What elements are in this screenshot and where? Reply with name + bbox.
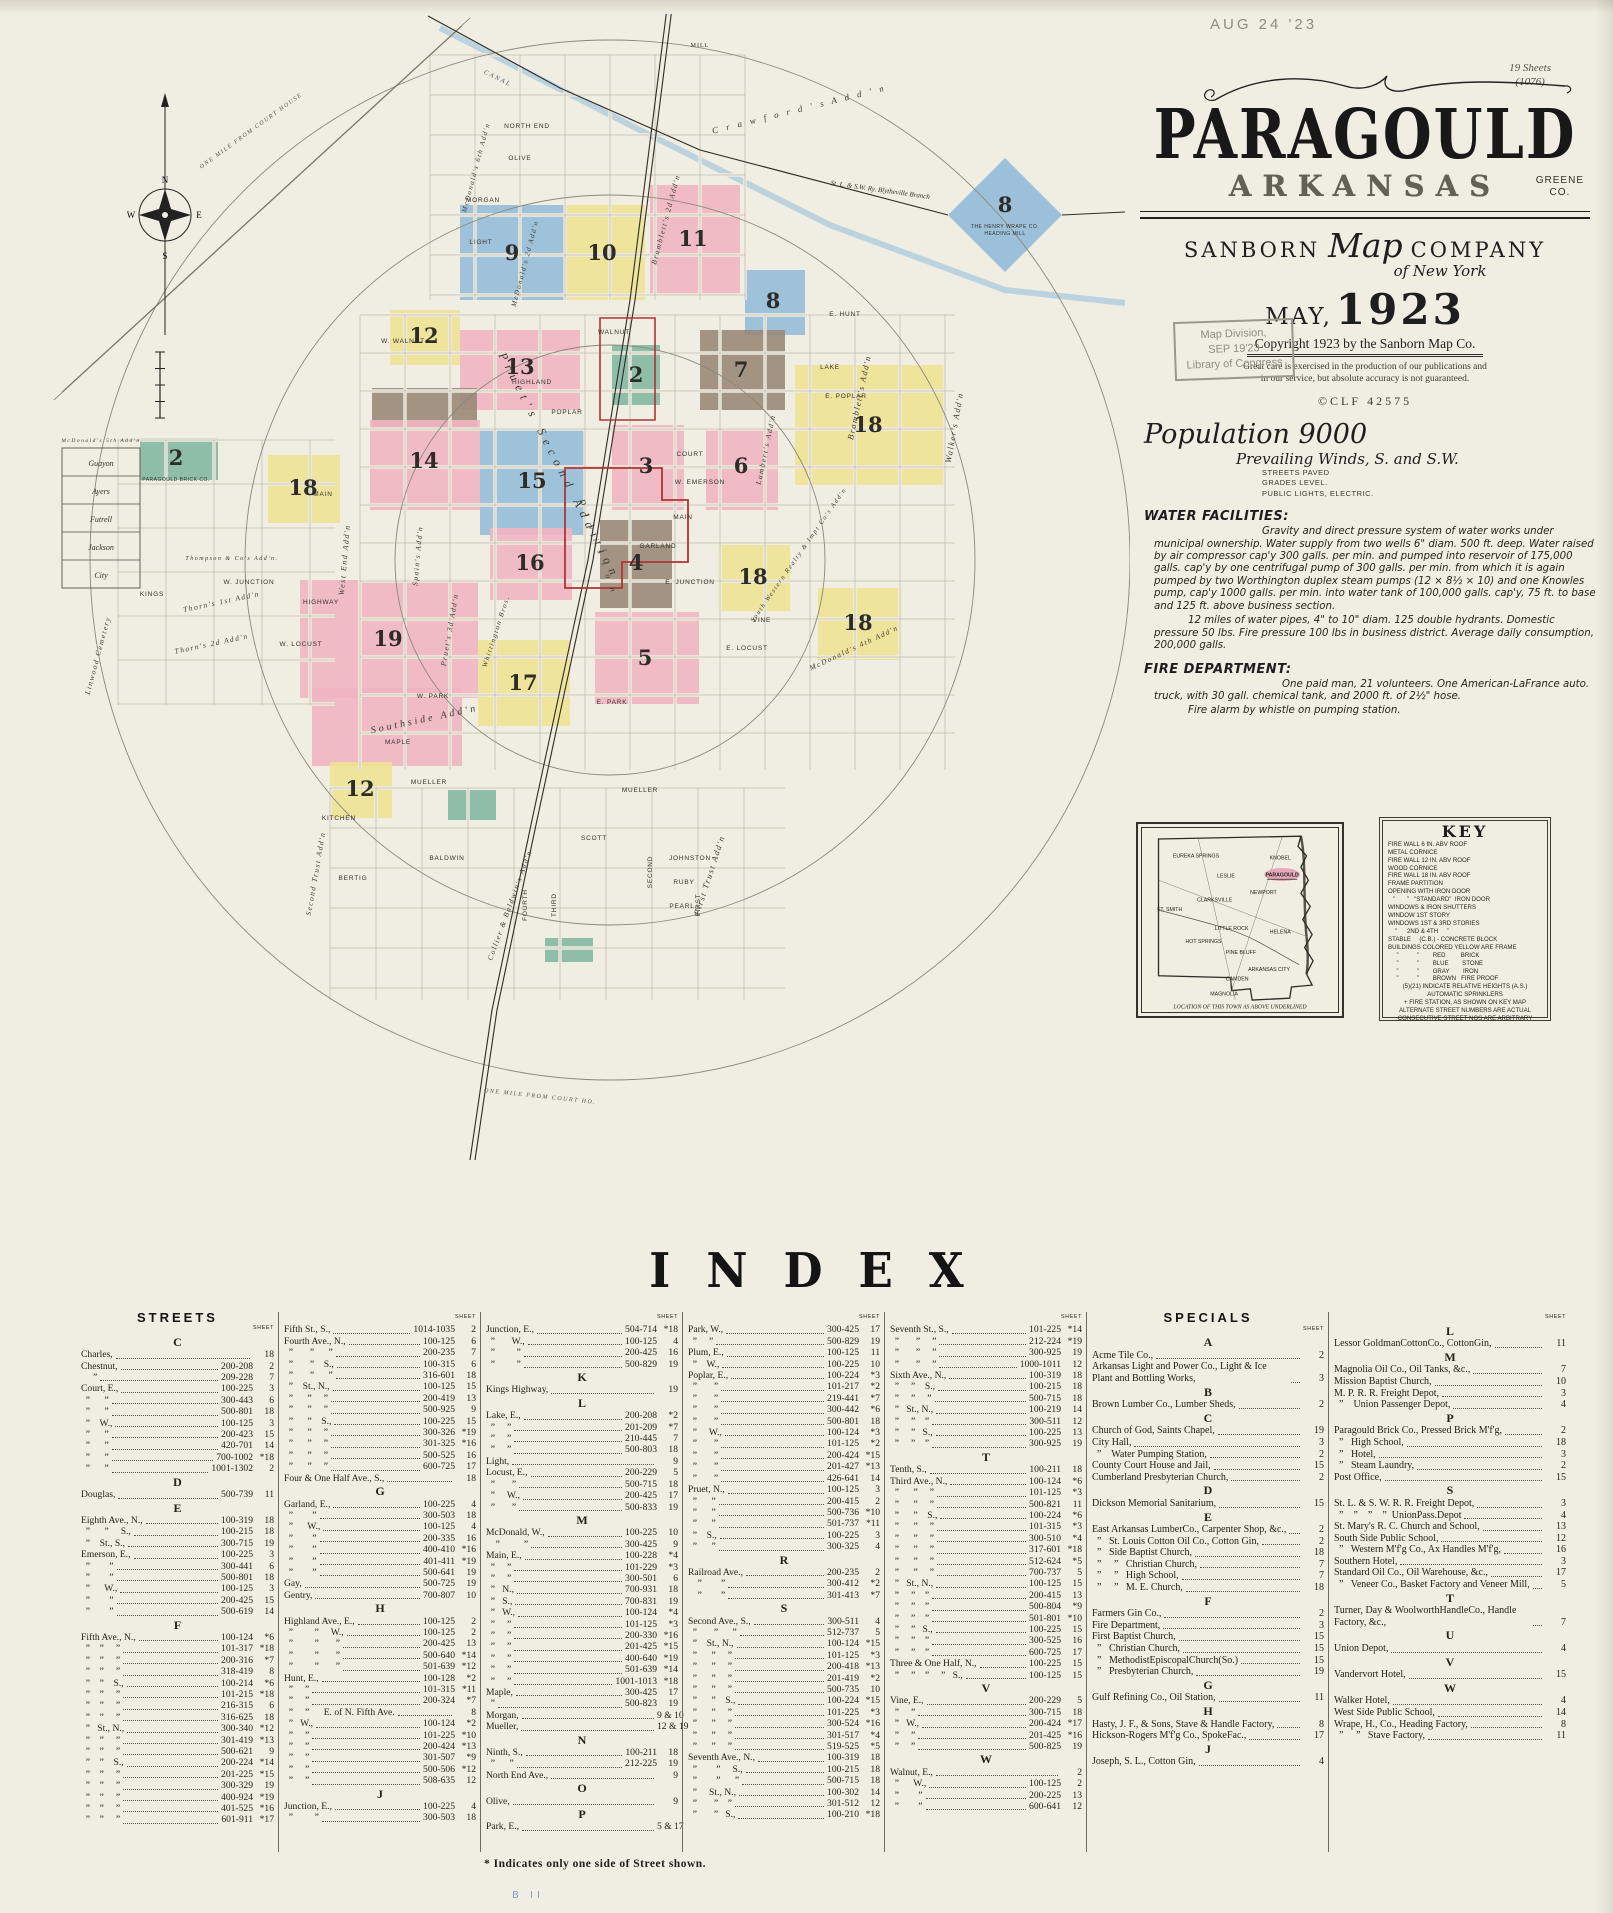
street-label: NORTH END — [504, 123, 550, 130]
sheet-number: 3 — [1545, 1556, 1566, 1568]
street-name: Emerson, E., — [81, 1549, 131, 1560]
dot-leader — [525, 1559, 622, 1560]
sheet-number: 6 — [455, 1336, 476, 1347]
index-letter-heading: L — [1334, 1326, 1566, 1338]
sheet-number: *3 — [1061, 1521, 1082, 1532]
house-number-range: 700-807 — [423, 1590, 455, 1601]
sheet-number: 14 — [253, 1440, 274, 1451]
street-label: PEARL — [669, 903, 694, 910]
house-number-range: 200-425 — [625, 1490, 657, 1501]
street-name: ” St., N., — [688, 1638, 734, 1649]
street-name: ” ” ” — [890, 1438, 929, 1449]
index-row: ” ” ”200-41513 — [890, 1590, 1082, 1601]
house-number-range: 100-125 — [1029, 1778, 1061, 1789]
sheet-number: 18 — [1303, 1547, 1324, 1559]
sheet-number: 6 — [455, 1359, 476, 1370]
index-row: ” ”101-125*2 — [688, 1438, 880, 1449]
street-label: WALNUT — [598, 329, 630, 336]
sheet-number: 19 — [657, 1359, 678, 1370]
house-number-range: 100-125 — [423, 1381, 455, 1392]
dot-leader — [134, 1535, 218, 1536]
street-name: ” ” — [81, 1406, 109, 1417]
street-name: ” ” — [284, 1695, 309, 1706]
sheet-number: *2 — [455, 1718, 476, 1729]
house-number-range: 500-735 — [827, 1684, 859, 1695]
street-name: ” ” ” — [81, 1689, 120, 1700]
sheet-number: 19 — [657, 1758, 678, 1769]
sheet-number: *10 — [1061, 1613, 1082, 1624]
street-name: ” W., — [890, 1718, 919, 1729]
sheet-number: *13 — [253, 1735, 274, 1746]
house-number-range: 200-424 — [827, 1450, 859, 1461]
library-of-congress-stamp: Map Division, SEP 19'23 Library of Congr… — [1173, 318, 1295, 381]
house-number-range: 300-443 — [221, 1395, 253, 1406]
dot-leader — [719, 1504, 824, 1505]
index-row: ” Steam Laundry,2 — [1334, 1460, 1566, 1472]
sheet-number: 15 — [455, 1416, 476, 1427]
index-row: Hasty, J. F., & Sons, Stave & Handle Fac… — [1092, 1719, 1324, 1731]
index-row: ” ” ” ” S.,100-12515 — [890, 1670, 1082, 1681]
dot-leader — [937, 1541, 1026, 1542]
index-row: ” ” S.,100-224*6 — [890, 1510, 1082, 1521]
sheet-number: 18 — [455, 1370, 476, 1381]
dot-leader — [926, 1809, 1027, 1810]
sheet-number: *14 — [1061, 1324, 1082, 1335]
sheet-number: 18 — [1061, 1370, 1082, 1381]
house-number-range: 100-215 — [1029, 1381, 1061, 1392]
dot-leader — [722, 1367, 824, 1368]
district-number: 18 — [738, 564, 767, 589]
index-row: ” ”500-83319 — [486, 1502, 678, 1513]
dot-leader — [1442, 1396, 1542, 1397]
street-name: ” ” ” — [284, 1650, 340, 1661]
street-name: ” — [486, 1698, 495, 1709]
street-name: ” ” S., — [688, 1764, 743, 1775]
house-number-range: 200-324 — [423, 1695, 455, 1706]
street-name: ” ” S., — [81, 1678, 124, 1689]
index-row: McDonald, W.,100-22510 — [486, 1527, 678, 1538]
sheet-number: 18 — [859, 1416, 880, 1427]
dot-leader — [918, 1738, 1026, 1739]
index-row: ” St., N.,100-124*15 — [688, 1638, 880, 1649]
street-name: ” ” ” — [890, 1499, 934, 1510]
dot-leader — [740, 1635, 824, 1636]
compass-north: N — [162, 175, 169, 185]
sheet-number: *7 — [253, 1655, 274, 1666]
index-row: ” ” ”500-71518 — [688, 1775, 880, 1786]
street-name: Walker Hotel, — [1334, 1695, 1390, 1707]
street-label: HIGHLAND — [512, 379, 552, 386]
dot-leader — [337, 1367, 420, 1368]
street-name: Light, — [486, 1456, 509, 1467]
house-number-range: 100-125 — [423, 1616, 455, 1627]
sheet-number: 3 — [253, 1383, 274, 1394]
dot-leader — [721, 1481, 824, 1482]
dot-leader — [134, 1558, 218, 1559]
dot-leader — [1195, 1556, 1300, 1557]
sheet-number: 7 — [657, 1433, 678, 1444]
dot-leader — [334, 1424, 420, 1425]
index-row: North End Ave.,9 — [486, 1770, 678, 1781]
dot-leader — [727, 1356, 824, 1357]
sheet-number: 6 — [253, 1700, 274, 1711]
dot-leader — [927, 1704, 1026, 1705]
index-row: Dickson Memorial Sanitarium,15 — [1092, 1498, 1324, 1510]
key-line: WINDOW 1ST STORY — [1388, 912, 1542, 920]
dot-leader — [524, 1356, 622, 1357]
index-row: ” ” ”216-3156 — [81, 1700, 274, 1711]
dot-leader — [518, 1616, 622, 1617]
street-name: ” ” Stave Factory, — [1334, 1730, 1425, 1742]
dot-leader — [738, 1704, 824, 1705]
dot-leader — [312, 1761, 420, 1762]
key-title: KEY — [1388, 824, 1542, 841]
dot-leader — [1441, 1541, 1542, 1542]
street-name: ” W., — [81, 1418, 112, 1429]
dot-leader — [936, 1775, 1058, 1776]
street-label: BALDWIN — [429, 855, 464, 862]
sheet-number: *2 — [859, 1438, 880, 1449]
street-name: ” ” ” — [81, 1700, 120, 1711]
sheet-number: 19 — [1061, 1741, 1082, 1752]
district-number: 9 — [505, 240, 520, 265]
index-row: ” W.,100-1252 — [890, 1778, 1082, 1789]
dot-leader — [938, 1390, 1026, 1391]
dot-leader — [1277, 1727, 1300, 1728]
city-label: NEWPORT — [1250, 890, 1277, 896]
index-row: ” ”300-5016 — [486, 1573, 678, 1584]
street-name: Eighth Ave., N., — [81, 1515, 143, 1526]
key-line: ” ” RED BRICK — [1388, 952, 1542, 960]
house-number-range: 600-725 — [423, 1461, 455, 1472]
street-name: Junction, E., — [486, 1324, 534, 1335]
index-row: Farmers Gin Co.,2 — [1092, 1608, 1324, 1620]
dot-leader — [1495, 1347, 1543, 1348]
dot-leader — [343, 1647, 420, 1648]
sheet-number: 11 — [1545, 1730, 1566, 1742]
owner-name: Jackson — [88, 543, 114, 552]
index-row: ” W.,100-1254 — [284, 1521, 476, 1532]
sheet-number: 8 — [253, 1666, 274, 1677]
street-name: Southern Hotel, — [1334, 1556, 1397, 1568]
street-name: ” ” — [486, 1433, 511, 1444]
index-row: ” W.,200-42517 — [486, 1490, 678, 1501]
street-index: STREETSSHEETCCharles,18Chestnut,200-2082… — [76, 1312, 1572, 1852]
street-name: ” ” — [81, 1463, 109, 1474]
index-row: ” ” ”316-60118 — [284, 1370, 476, 1381]
street-name: ” ” — [284, 1684, 309, 1695]
dot-leader — [1438, 1716, 1542, 1717]
sheet-number: 3 — [859, 1484, 880, 1495]
sheet-number: 4 — [455, 1499, 476, 1510]
sheet-number: 15 — [1061, 1578, 1082, 1589]
index-row: ” ” ”317-601*18 — [890, 1544, 1082, 1555]
dot-leader — [939, 1344, 1026, 1345]
street-name: ” Veneer Co., Basket Factory and Veneer … — [1334, 1579, 1530, 1591]
street-name: ” ” High School, — [1092, 1570, 1179, 1582]
index-row: Sixth Ave., N.,100-31918 — [890, 1370, 1082, 1381]
dot-leader — [514, 1627, 622, 1628]
street-name: ” W., — [688, 1359, 719, 1370]
house-number-range: 100-228 — [625, 1550, 657, 1561]
index-row: ” ”301-413*7 — [688, 1590, 880, 1601]
dot-leader — [117, 1615, 219, 1616]
sheet-number: 15 — [1303, 1631, 1324, 1643]
dot-leader — [524, 1419, 622, 1420]
dot-leader — [123, 1720, 218, 1721]
street-name: ” ” — [890, 1741, 915, 1752]
street-name: East Arkansas LumberCo., Carpenter Shop,… — [1092, 1524, 1286, 1536]
city-label: HOT SPRINGS — [1185, 939, 1221, 945]
street-name: ” ” ” — [890, 1347, 936, 1358]
street-name: ” ” ” — [890, 1336, 936, 1347]
index-row: ” ” ”300-32919 — [81, 1780, 274, 1791]
street-name: ” ” S., — [890, 1427, 933, 1438]
dot-leader — [123, 1811, 218, 1812]
dot-leader — [758, 1761, 824, 1762]
index-row: ” ”219-441*7 — [688, 1393, 880, 1404]
street-name: Fifth Ave., N., — [81, 1632, 136, 1643]
sheet-number: 2 — [859, 1496, 880, 1507]
index-row: East Arkansas LumberCo., Carpenter Shop,… — [1092, 1524, 1324, 1536]
index-row: ” ”500-71518 — [486, 1479, 678, 1490]
dot-leader — [922, 1727, 1026, 1728]
street-label: COURT — [677, 451, 704, 458]
index-row: ” ” ”300-326*19 — [284, 1427, 476, 1438]
house-number-range: 501-639 — [423, 1661, 455, 1672]
index-row: ” ” ”101-317*18 — [81, 1643, 274, 1654]
dot-leader — [522, 1718, 654, 1719]
street-name: ” ” ” — [890, 1613, 929, 1624]
sheet-number: 15 — [253, 1595, 274, 1606]
house-number-range: 500-506 — [423, 1764, 455, 1775]
house-number-range: 500-715 — [827, 1775, 859, 1786]
house-number-range: 300-525 — [1029, 1635, 1061, 1646]
house-number-range: 100-214 — [221, 1678, 253, 1689]
dot-leader — [932, 1598, 1026, 1599]
street-label: JOHNSTON — [669, 855, 711, 862]
city-notes: STREETS PAVED GRADES LEVEL. PUBLIC LIGHT… — [1262, 468, 1608, 501]
house-number-range: 500-621 — [221, 1746, 253, 1757]
sheet-number: 11 — [859, 1347, 880, 1358]
dot-leader — [721, 1470, 824, 1471]
city-label: PINE BLUFF — [1226, 950, 1256, 956]
sheet-number: *2 — [455, 1673, 476, 1684]
house-number-range: 201-419 — [827, 1673, 859, 1684]
sheet-number: *9 — [1061, 1601, 1082, 1612]
street-name: ” ” ” — [890, 1416, 929, 1427]
dot-leader — [937, 1530, 1026, 1531]
street-name: ” ” — [486, 1422, 511, 1433]
sheet-number: 19 — [657, 1596, 678, 1607]
sheet-number: 19 — [1061, 1438, 1082, 1449]
index-row: ” St. Louis Cotton Oil Co., Cotton Gin,2 — [1092, 1536, 1324, 1548]
dot-leader — [123, 1709, 218, 1710]
house-number-range: 508-635 — [423, 1775, 455, 1786]
sheet-number: *19 — [657, 1653, 678, 1664]
street-name: Arkansas Light and Power Co., Light & Ic… — [1092, 1361, 1288, 1384]
index-row: Joseph, S. L., Cotton Gin,4 — [1092, 1756, 1324, 1768]
house-number-range: 100-225 — [625, 1527, 657, 1538]
house-number-range: 101-125 — [827, 1650, 859, 1661]
index-row: ” ” ”512-624*5 — [890, 1556, 1082, 1567]
street-label: E. LOCUST — [726, 645, 768, 652]
sheet-number: *6 — [253, 1632, 274, 1643]
house-number-range: 316-601 — [423, 1370, 455, 1381]
sheet-number: *6 — [1061, 1476, 1082, 1487]
sheet-number: 18 — [1061, 1707, 1082, 1718]
street-name: Three & One Half, N., — [890, 1658, 977, 1669]
index-row: ” ”400-640*19 — [486, 1653, 678, 1664]
index-row: Magnolia Oil Co., Oil Tanks, &c.,7 — [1334, 1364, 1566, 1376]
index-row: ” ”501-737*11 — [688, 1518, 880, 1529]
sheet-number: 5 — [1061, 1695, 1082, 1706]
street-name: ” ” ” — [890, 1359, 936, 1370]
street-name: ” W., — [890, 1778, 926, 1789]
dot-leader — [735, 1715, 824, 1716]
street-name: ” ” ” — [890, 1521, 934, 1532]
index-row: ” N.,700-93118 — [486, 1584, 678, 1595]
sheet-number: 16 — [455, 1450, 476, 1461]
street-name: ” ” — [688, 1393, 718, 1404]
house-number-range: 100-124 — [1029, 1476, 1061, 1487]
dot-leader — [112, 1472, 209, 1473]
dot-leader — [121, 1392, 218, 1393]
sheet-number: *11 — [859, 1518, 880, 1529]
city-label: ARKANSAS CITY — [1248, 967, 1290, 973]
sheet-number: 4 — [455, 1521, 476, 1532]
dot-leader — [320, 1575, 421, 1576]
house-number-range: 300-441 — [221, 1561, 253, 1572]
index-letter-heading: T — [890, 1452, 1082, 1463]
street-name: Kings Highway, — [486, 1384, 548, 1395]
street-name: Walnut, E., — [890, 1767, 933, 1778]
sheet-number: 19 — [1303, 1425, 1324, 1437]
street-name: Olive, — [486, 1796, 510, 1807]
street-name: ” ” S., — [890, 1381, 935, 1392]
house-number-range: 1001-1013 — [615, 1676, 657, 1687]
house-number-range: 501-801 — [1029, 1613, 1061, 1624]
key-line: CONSECUTIVE STREET NOS ARE ARBITRARY — [1388, 1015, 1542, 1023]
sheet-number: 13 — [455, 1638, 476, 1649]
house-number-range: 100-211 — [1029, 1464, 1061, 1475]
key-line: METAL CORNICE — [1388, 849, 1542, 857]
index-row: ” ” Stave Factory,11 — [1334, 1730, 1566, 1742]
street-name: Vandervort Hotel, — [1334, 1669, 1406, 1681]
index-specials-column: SPECIALSSHEETAAcme Tile Co.,2Arkansas Li… — [1086, 1312, 1328, 1852]
street-name: ” ” ” — [890, 1533, 934, 1544]
sheet-number: 12 — [859, 1798, 880, 1809]
index-row: ” High School,18 — [1334, 1437, 1566, 1449]
sheet-number: 5 & 17 — [657, 1821, 678, 1832]
street-name: ” ” — [486, 1664, 511, 1675]
index-row: Church of God, Saints Chapel,19 — [1092, 1425, 1324, 1437]
house-number-range: 300-326 — [423, 1427, 455, 1438]
sheet-number: 2 — [1303, 1472, 1324, 1484]
street-name: Douglas, — [81, 1489, 115, 1500]
water-facilities-heading: WATER FACILITIES: — [1144, 509, 1608, 524]
map-key: KEY FIRE WALL 6 IN. ABV ROOFMETAL CORNIC… — [1382, 820, 1548, 1018]
dot-leader — [1214, 1469, 1300, 1470]
house-number-range: 100-225 — [423, 1801, 455, 1812]
dot-leader — [320, 1564, 421, 1565]
street-name: Lake, E., — [486, 1410, 521, 1421]
sheet-number: 3 — [859, 1530, 880, 1541]
dot-leader — [1407, 1446, 1542, 1447]
index-row: ” ” S.,100-22515 — [284, 1416, 476, 1427]
sheet-number: 19 — [1061, 1347, 1082, 1358]
index-row: ” Presbyterian Church,19 — [1092, 1666, 1324, 1678]
sheet-number: 19 — [859, 1336, 880, 1347]
district-area — [545, 938, 593, 962]
house-number-range: 300-511 — [827, 1616, 859, 1627]
house-number-range: 100-125 — [423, 1336, 455, 1347]
sheet-number: *15 — [859, 1450, 880, 1461]
dot-leader — [343, 1670, 420, 1671]
sheet-number: 18 — [1061, 1381, 1082, 1392]
city-label: FT. SMITH — [1157, 907, 1182, 913]
sheet-number: 19 — [1303, 1666, 1324, 1678]
house-number-range: 100-225 — [1029, 1658, 1061, 1669]
street-name: Acme Tile Co., — [1092, 1350, 1153, 1362]
house-number-range: 100-319 — [221, 1515, 253, 1526]
index-row: ” ”700-1002*18 — [81, 1452, 274, 1463]
sheet-number: *5 — [859, 1741, 880, 1752]
house-number-range: 201-427 — [827, 1461, 859, 1472]
index-row: Cumberland Presbyterian Church,2 — [1092, 1472, 1324, 1484]
dot-leader — [728, 1493, 824, 1494]
house-number-range: 101-315 — [423, 1684, 455, 1695]
district-number: 2 — [629, 362, 644, 387]
street-name: ” ” ” — [688, 1798, 732, 1809]
index-row: Third Ave., N.,100-124*6 — [890, 1476, 1082, 1487]
house-number-range: 401-525 — [221, 1803, 253, 1814]
street-name: ” St., N., — [890, 1404, 933, 1415]
street-name: Paragould Brick Co., Pressed Brick M'f'g… — [1334, 1425, 1502, 1437]
sheet-number: *3 — [859, 1370, 880, 1381]
index-letter-heading: E — [1092, 1512, 1324, 1524]
street-name: ” ” — [81, 1606, 114, 1617]
sheet-number: 18 — [455, 1812, 476, 1823]
sheet-number: 3 — [253, 1549, 274, 1560]
index-row: ” Union Passenger Depot,4 — [1334, 1399, 1566, 1411]
ornament-rule — [1140, 211, 1590, 219]
dot-leader — [720, 1538, 824, 1539]
sheet-number: 15 — [1545, 1669, 1566, 1681]
house-number-range: 212-225 — [625, 1758, 657, 1769]
dot-leader — [331, 1401, 420, 1402]
dot-leader — [1453, 1408, 1542, 1409]
index-row: Paragould Brick Co., Pressed Brick M'f'g… — [1334, 1425, 1566, 1437]
index-row: Junction, E.,504-714*18 — [486, 1324, 678, 1335]
street-name: ” ” — [486, 1619, 511, 1630]
street-label: E. JUNCTION — [665, 579, 715, 586]
street-name: ” ” — [81, 1561, 114, 1572]
index-row: ” ”300-50318 — [284, 1510, 476, 1521]
index-row: Garland, E.,100-2254 — [284, 1499, 476, 1510]
catalog-number: ©CLF 42575 — [1122, 394, 1608, 409]
sheet-number: *15 — [253, 1769, 274, 1780]
street-name: ” ” ” — [890, 1544, 934, 1555]
house-number-range: 300-425 — [625, 1687, 657, 1698]
key-line: FIRE WALL 18 IN. ABV ROOF — [1388, 872, 1542, 880]
index-row: ” Hotel,3 — [1334, 1449, 1566, 1461]
dot-leader — [118, 1498, 218, 1499]
index-row: Fifth Ave., N.,100-124*6 — [81, 1632, 274, 1643]
index-row: ” ”201-425*15 — [486, 1641, 678, 1652]
arkansas-river — [1159, 910, 1299, 964]
water-facilities-paragraph-2: 12 miles of water pipes, 4" to 10" diam.… — [1154, 615, 1602, 652]
